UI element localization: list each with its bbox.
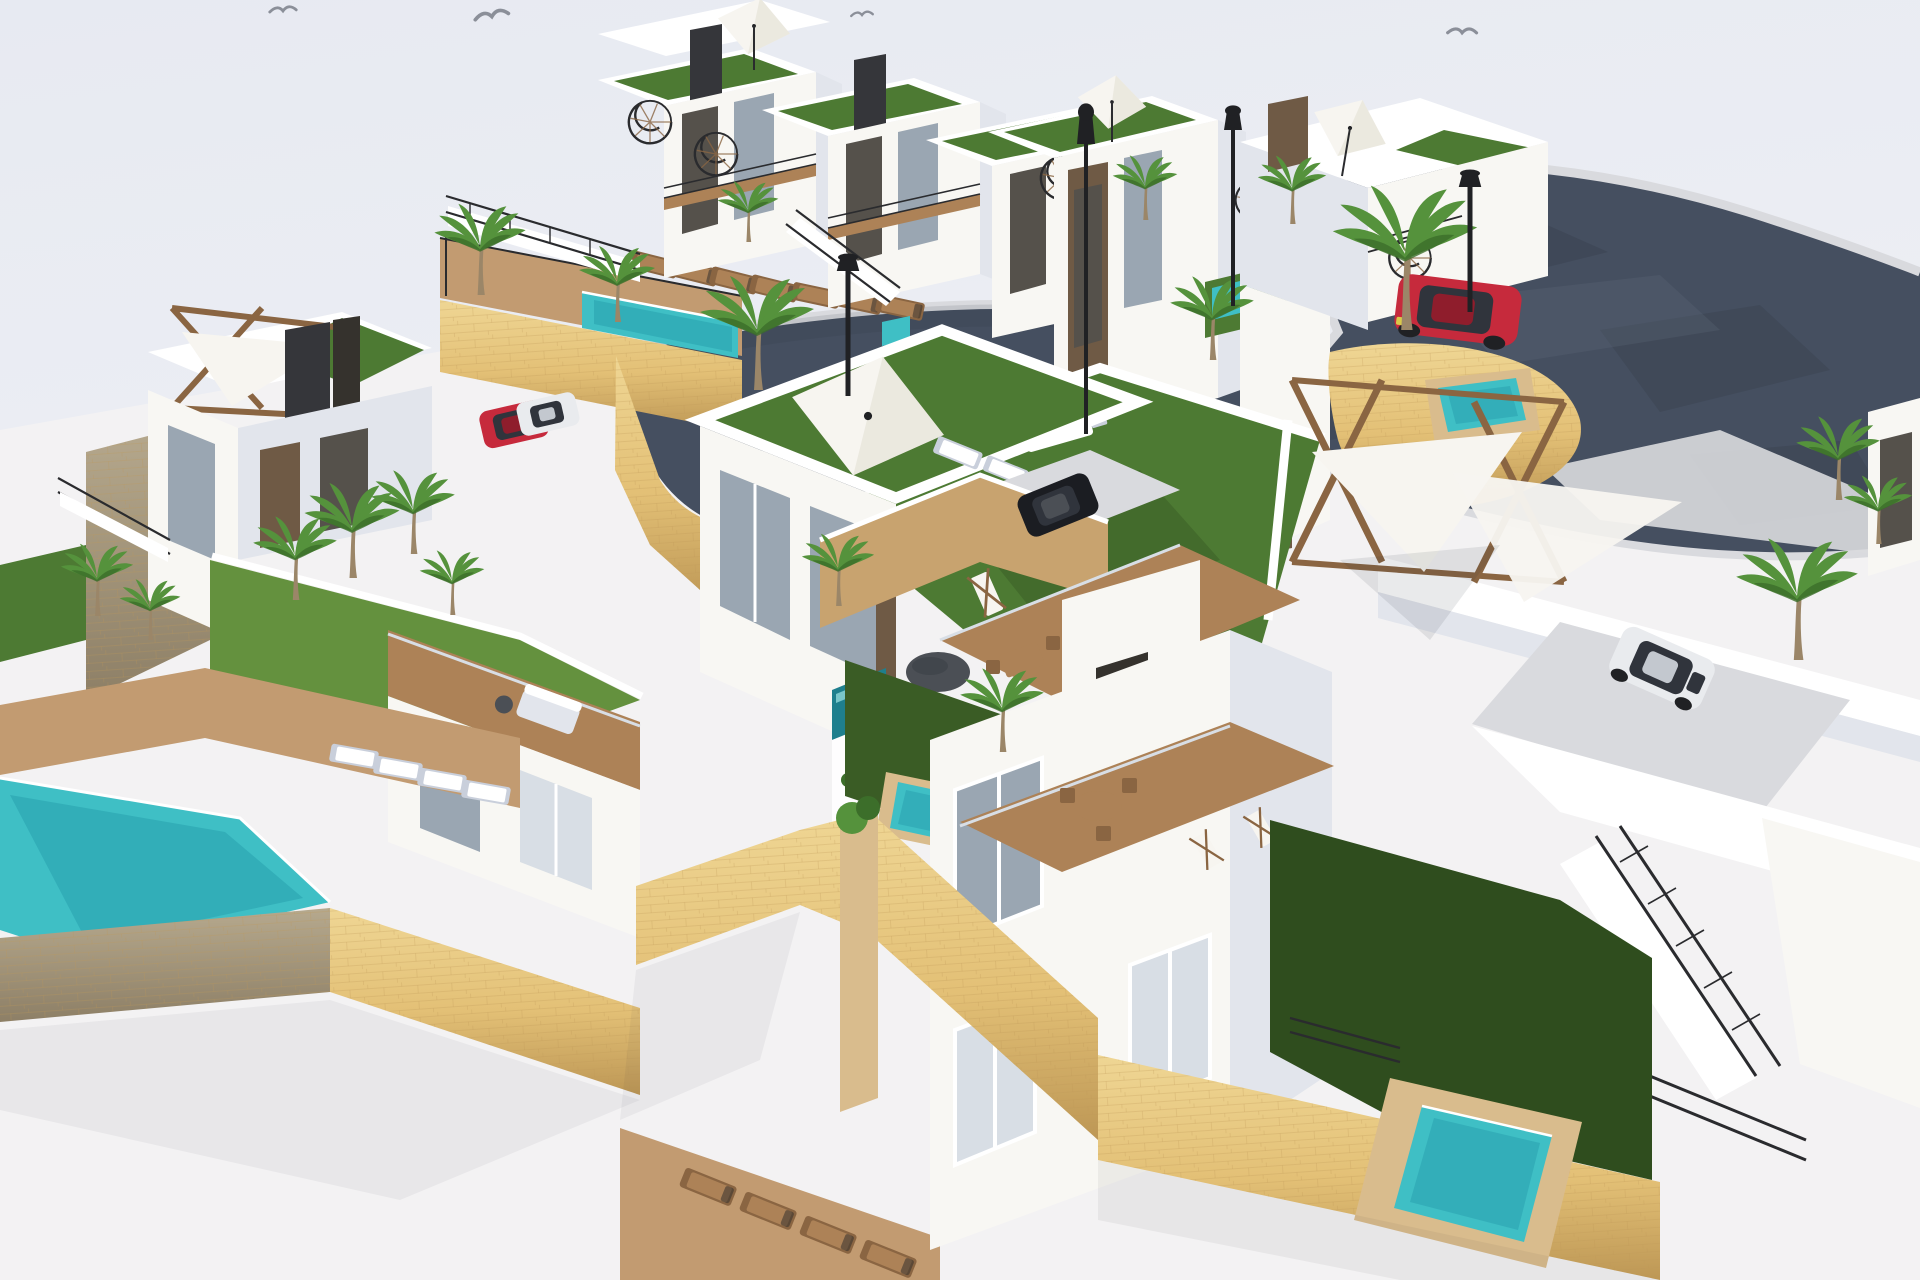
roof-glazing-panel [1268,96,1308,172]
dining-chair [1046,636,1060,650]
stone-pillar [840,808,878,1112]
scene-svg: Villa development aerial render Aerial 3… [0,0,1920,1280]
chair [1060,788,1075,803]
window [168,425,215,560]
window [682,106,718,234]
dining-chair [986,660,1000,674]
chair [1096,826,1111,841]
pouf-shade [912,657,948,675]
round-table [1074,791,1122,821]
window [846,136,882,264]
planter-bush [856,796,880,820]
window [1010,166,1046,294]
chair [1122,778,1137,793]
render-canvas: Villa development aerial render Aerial 3… [0,0,1920,1280]
